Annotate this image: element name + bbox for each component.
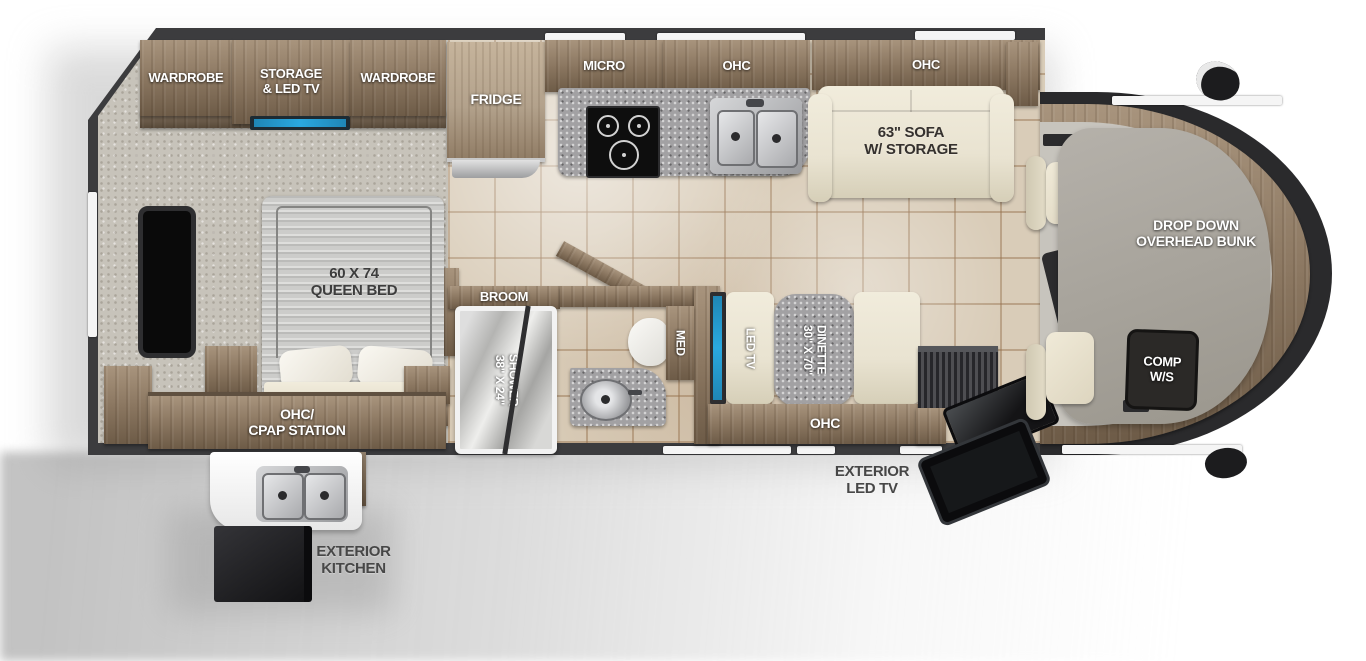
- toilet: [628, 318, 670, 366]
- bath-vanity: [570, 368, 666, 426]
- sofa-ohc-label: OHC: [912, 58, 940, 73]
- exterior-led-tv-label: EXTERIOR LED TV: [818, 460, 926, 502]
- bunk-label-line2: OVERHEAD BUNK: [1136, 234, 1256, 250]
- nightstand-1: [104, 366, 152, 444]
- entry-wood-block: [916, 408, 946, 444]
- fridge-cabinet: FRIDGE: [447, 42, 545, 162]
- bedroom-led-tv-frame: [250, 116, 350, 130]
- dinette-table-label: 30" X 70" DINETTE: [801, 325, 828, 375]
- window-cab-top: [1112, 96, 1282, 105]
- broom-label: BROOM: [480, 290, 528, 305]
- wardrobe-front-label: WARDROBE: [361, 71, 436, 86]
- passenger-seat: [1046, 332, 1094, 404]
- kitchen-sink-basin-right: [756, 110, 798, 168]
- fridge-label: FRIDGE: [470, 92, 521, 108]
- wardrobe-rear-label: WARDROBE: [149, 71, 224, 86]
- dinette-bench-right: [854, 292, 920, 404]
- exterior-sink-basin-left: [262, 473, 304, 520]
- dinette-ohc-cabinet: OHC: [708, 404, 942, 444]
- micro-label: MICRO: [583, 59, 625, 74]
- stove-cooktop: [586, 106, 660, 178]
- computer-workstation: COMP W/S: [1125, 329, 1200, 411]
- bath-sink-bowl: [580, 379, 632, 421]
- bed-label-line2: QUEEN BED: [311, 283, 397, 300]
- window-bottom-2: [797, 446, 835, 454]
- med-cabinet: MED: [666, 306, 694, 380]
- dinette-tv-screen: [713, 296, 722, 400]
- storage-label-line1: STORAGE: [260, 67, 322, 82]
- exterior-sink-basin-right: [304, 473, 346, 520]
- exterior-kitchen-label: EXTERIOR KITCHEN: [296, 540, 411, 582]
- sofa-label-line1: 63" SOFA: [878, 125, 944, 142]
- nightstand-2: [205, 346, 257, 394]
- bunk-label: DROP DOWN OVERHEAD BUNK: [1100, 210, 1292, 258]
- dinette-label-line2: DINETTE: [814, 325, 827, 375]
- kitchen-faucet: [746, 99, 764, 107]
- sofa-armrest-left: [808, 94, 832, 202]
- stove-burner-1: [597, 115, 619, 137]
- med-label: MED: [673, 330, 686, 356]
- bed-inner-border: 60 X 74 QUEEN BED: [276, 206, 432, 358]
- exterior-led-tv-label-line2: LED TV: [846, 481, 898, 498]
- cpap-station-cabinet: OHC/ CPAP STATION: [148, 392, 446, 449]
- drain: [772, 134, 781, 143]
- driver-seat-back: [1026, 156, 1046, 230]
- exterior-faucet: [294, 466, 310, 473]
- kitchen-ohc-label: OHC: [723, 59, 751, 74]
- dinette-table: 30" X 70" DINETTE: [774, 294, 854, 406]
- sofa-armrest-right: [990, 94, 1014, 202]
- storage-ledtv-cabinet: STORAGE & LED TV: [232, 40, 350, 124]
- kitchen-sink-basin-left: [717, 110, 755, 166]
- exterior-kitchen-label-line2: KITCHEN: [321, 561, 386, 578]
- stove-burner-3: [609, 140, 639, 170]
- exterior-kitchen-label-line1: EXTERIOR: [316, 544, 390, 561]
- dinette-bench-left: LED TV: [726, 292, 774, 404]
- sofa-label-line2: W/ STORAGE: [864, 142, 957, 159]
- comp-ws-label-line2: W/S: [1150, 370, 1174, 385]
- bed-label-line1: 60 X 74: [329, 266, 379, 283]
- dinette-label-line1: 30" X 70": [801, 325, 814, 375]
- cpap-label-line2: CPAP STATION: [248, 423, 345, 439]
- wardrobe-front-cabinet: WARDROBE: [350, 40, 446, 116]
- dinette-ledtv-label: LED TV: [743, 328, 756, 369]
- drain: [278, 491, 287, 500]
- stove-burner-2: [628, 115, 650, 137]
- wardrobe-rear-cabinet: WARDROBE: [140, 40, 232, 116]
- kitchen-sink-unit: [710, 98, 802, 174]
- shower: 38" X 24" SHOWER: [455, 306, 557, 454]
- micro-cabinet: MICRO: [545, 40, 663, 92]
- window-top-3: [915, 31, 1015, 40]
- sofa: 63" SOFA W/ STORAGE: [818, 86, 1004, 198]
- drain: [601, 395, 610, 404]
- bedroom-led-tv-screen: [254, 119, 346, 127]
- drain: [731, 132, 740, 141]
- storage-label-line2: & LED TV: [263, 82, 320, 97]
- drain: [320, 491, 329, 500]
- window-bottom-1: [663, 446, 791, 454]
- exterior-led-tv-label-line1: EXTERIOR: [835, 464, 909, 481]
- sofa-center-seam: [910, 90, 912, 112]
- bunk-label-line1: DROP DOWN: [1153, 218, 1239, 234]
- fridge-counter-flap: [452, 160, 540, 178]
- passenger-seat-back: [1026, 344, 1046, 420]
- rear-window: [138, 206, 196, 358]
- shower-label-line1: 38" X 24": [493, 354, 506, 406]
- kitchen-ohc-cabinet: OHC: [663, 40, 810, 92]
- rv-floorplan: WARDROBE STORAGE & LED TV WARDROBE FRIDG…: [0, 0, 1366, 661]
- cpap-label-line1: OHC/: [280, 407, 314, 423]
- window-rear-left: [88, 192, 97, 337]
- dinette-tv-frame: [710, 292, 726, 404]
- dinette-ohc-label: OHC: [810, 416, 840, 432]
- exterior-sink-unit: [256, 466, 348, 522]
- bath-faucet: [628, 390, 642, 395]
